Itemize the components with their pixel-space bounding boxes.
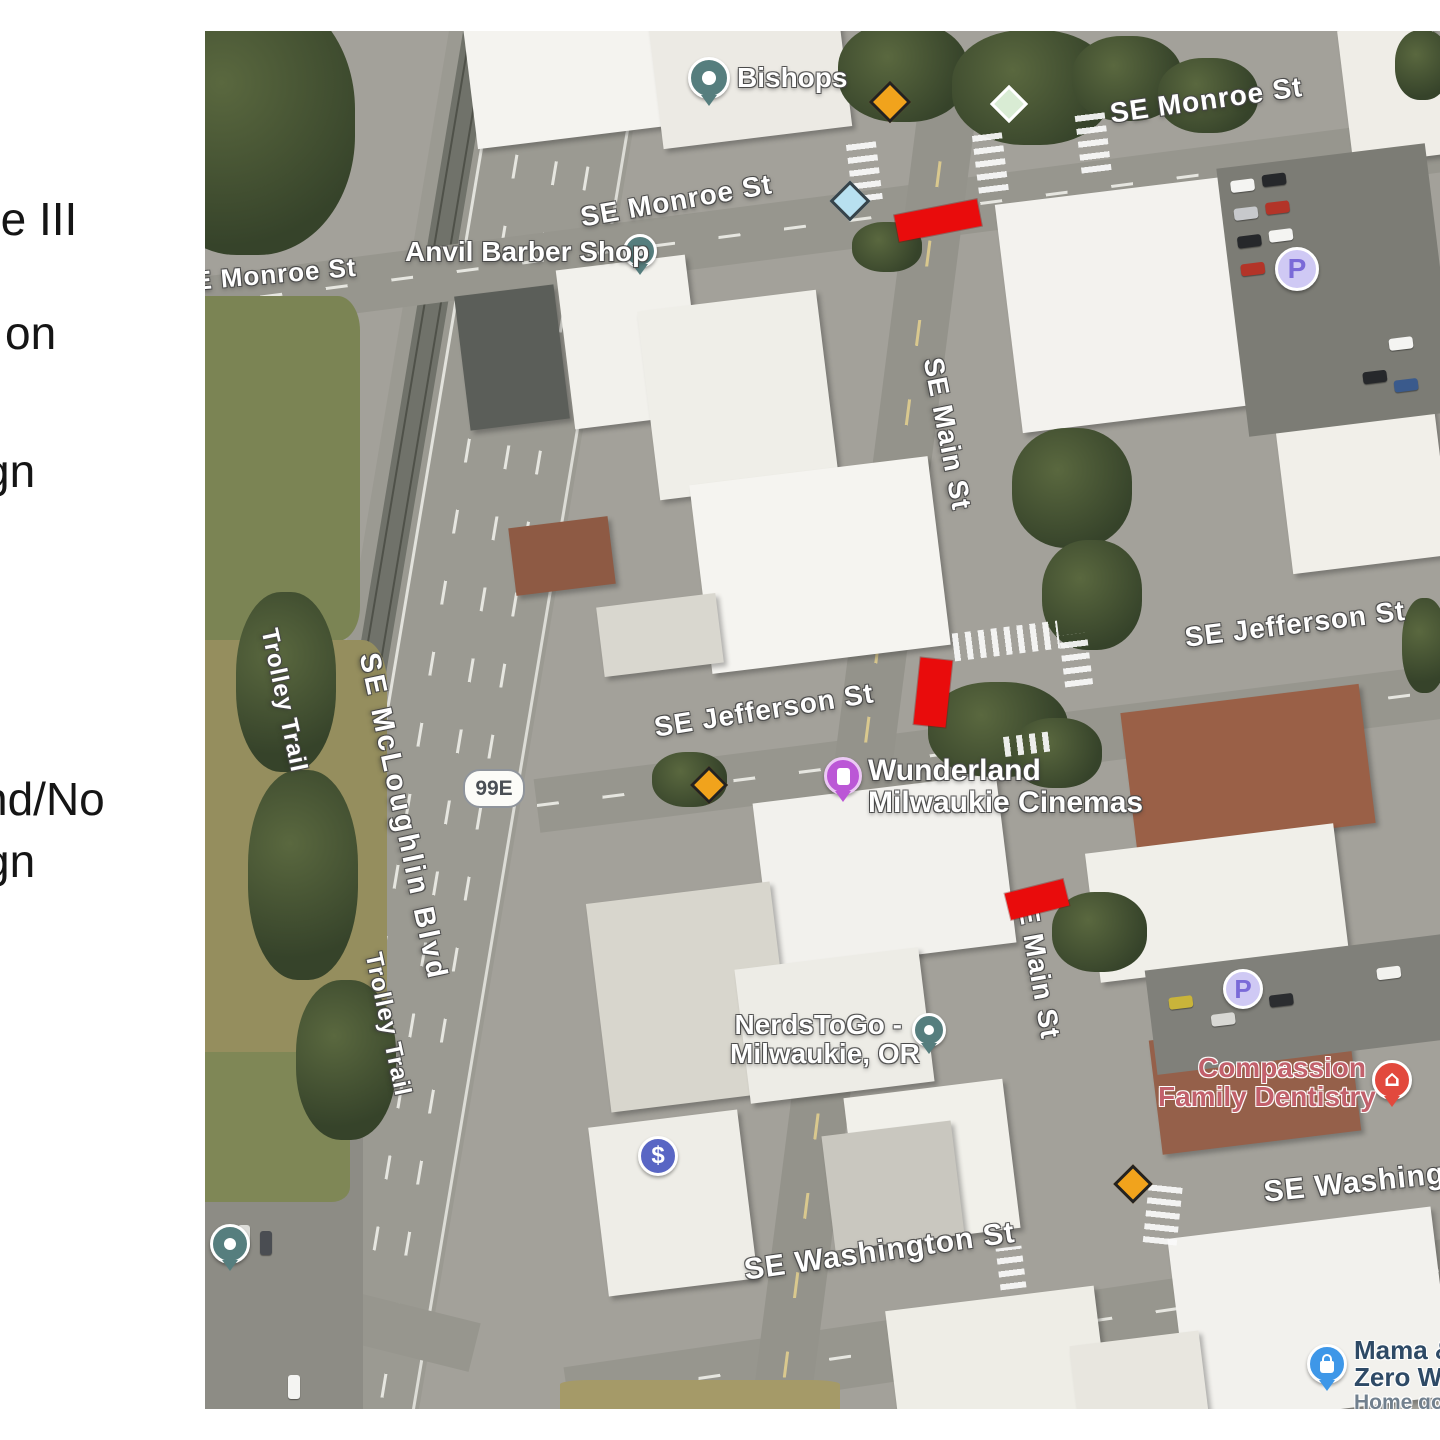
poi-dot-icon (924, 1025, 935, 1036)
legend-fragment-1: pe III (0, 192, 77, 246)
legend-fragment-5: gn (0, 834, 35, 888)
mama-zero-waste-label-line-2: Zero Wa (1354, 1364, 1440, 1391)
bishops-pin[interactable] (688, 57, 730, 99)
compassion-family-dentistry-label[interactable]: CompassionFamily Dentistry (1158, 1053, 1366, 1112)
compassion-family-dentistry-label-line-2: Family Dentistry (1158, 1082, 1366, 1111)
shopping-bag-icon (1320, 1361, 1334, 1373)
dollar-poi-badge-letter: $ (651, 1144, 664, 1168)
dollar-poi-pin[interactable]: $ (638, 1136, 678, 1176)
mama-zero-waste-label-line-1: Mama & (1354, 1337, 1440, 1364)
parking-north-badge-letter: P (1288, 255, 1307, 283)
poi-dot-icon (224, 1238, 237, 1251)
bishops-label-line-1: Bishops (737, 63, 847, 92)
legend-fragment-3: gn (0, 444, 35, 498)
wunderland-milwaukie-cinemas-label[interactable]: WunderlandMilwaukie Cinemas (868, 755, 1143, 818)
nerdstogo-milwaukie-label[interactable]: NerdsToGo -Milwaukie, OR (730, 1010, 902, 1069)
mama-zero-waste-label-line-3: Home go (1354, 1392, 1440, 1409)
parking-south-pin[interactable]: P (1223, 969, 1263, 1009)
house-icon: ⌂ (1384, 1069, 1400, 1091)
compassion-family-dentistry-pin[interactable]: ⌂ (1372, 1060, 1412, 1100)
anvil-barber-shop-label-line-1: Anvil Barber Shop (405, 237, 615, 266)
legend-panel: pe IIIongnnd/Nogn (0, 0, 205, 1440)
compassion-family-dentistry-label-line-1: Compassion (1158, 1053, 1366, 1082)
mama-zero-waste-pin[interactable] (1307, 1344, 1347, 1384)
legend-fragment-2: on (5, 306, 56, 360)
nerdstogo-milwaukie-label-line-1: NerdsToGo - (730, 1010, 902, 1039)
wunderland-milwaukie-cinemas-label-line-2: Milwaukie Cinemas (868, 787, 1143, 819)
legend-fragment-4: nd/No (0, 772, 105, 826)
poi-dot-icon (702, 71, 716, 85)
wunderland-milwaukie-cinemas-label-line-1: Wunderland (868, 755, 1143, 787)
parking-south-badge-letter: P (1234, 976, 1251, 1002)
ticket-icon (837, 768, 850, 785)
wunderland-milwaukie-cinemas-pin[interactable] (824, 757, 862, 795)
highway-shield-label: 99E (475, 777, 512, 801)
mama-zero-waste-label[interactable]: Mama &Zero WaHome go (1354, 1337, 1440, 1409)
highway-shield-99e: 99E (463, 769, 525, 808)
map-image[interactable]: 99E SE Monroe StSE Monroe StE Monroe StS… (205, 31, 1440, 1409)
anvil-barber-shop-label[interactable]: Anvil Barber Shop (405, 237, 615, 266)
parking-north-pin[interactable]: P (1275, 247, 1319, 291)
generic-poi-southwest-pin[interactable] (210, 1224, 250, 1264)
nerdstogo-milwaukie-label-line-2: Milwaukie, OR (730, 1039, 902, 1068)
bishops-label[interactable]: Bishops (737, 63, 847, 92)
